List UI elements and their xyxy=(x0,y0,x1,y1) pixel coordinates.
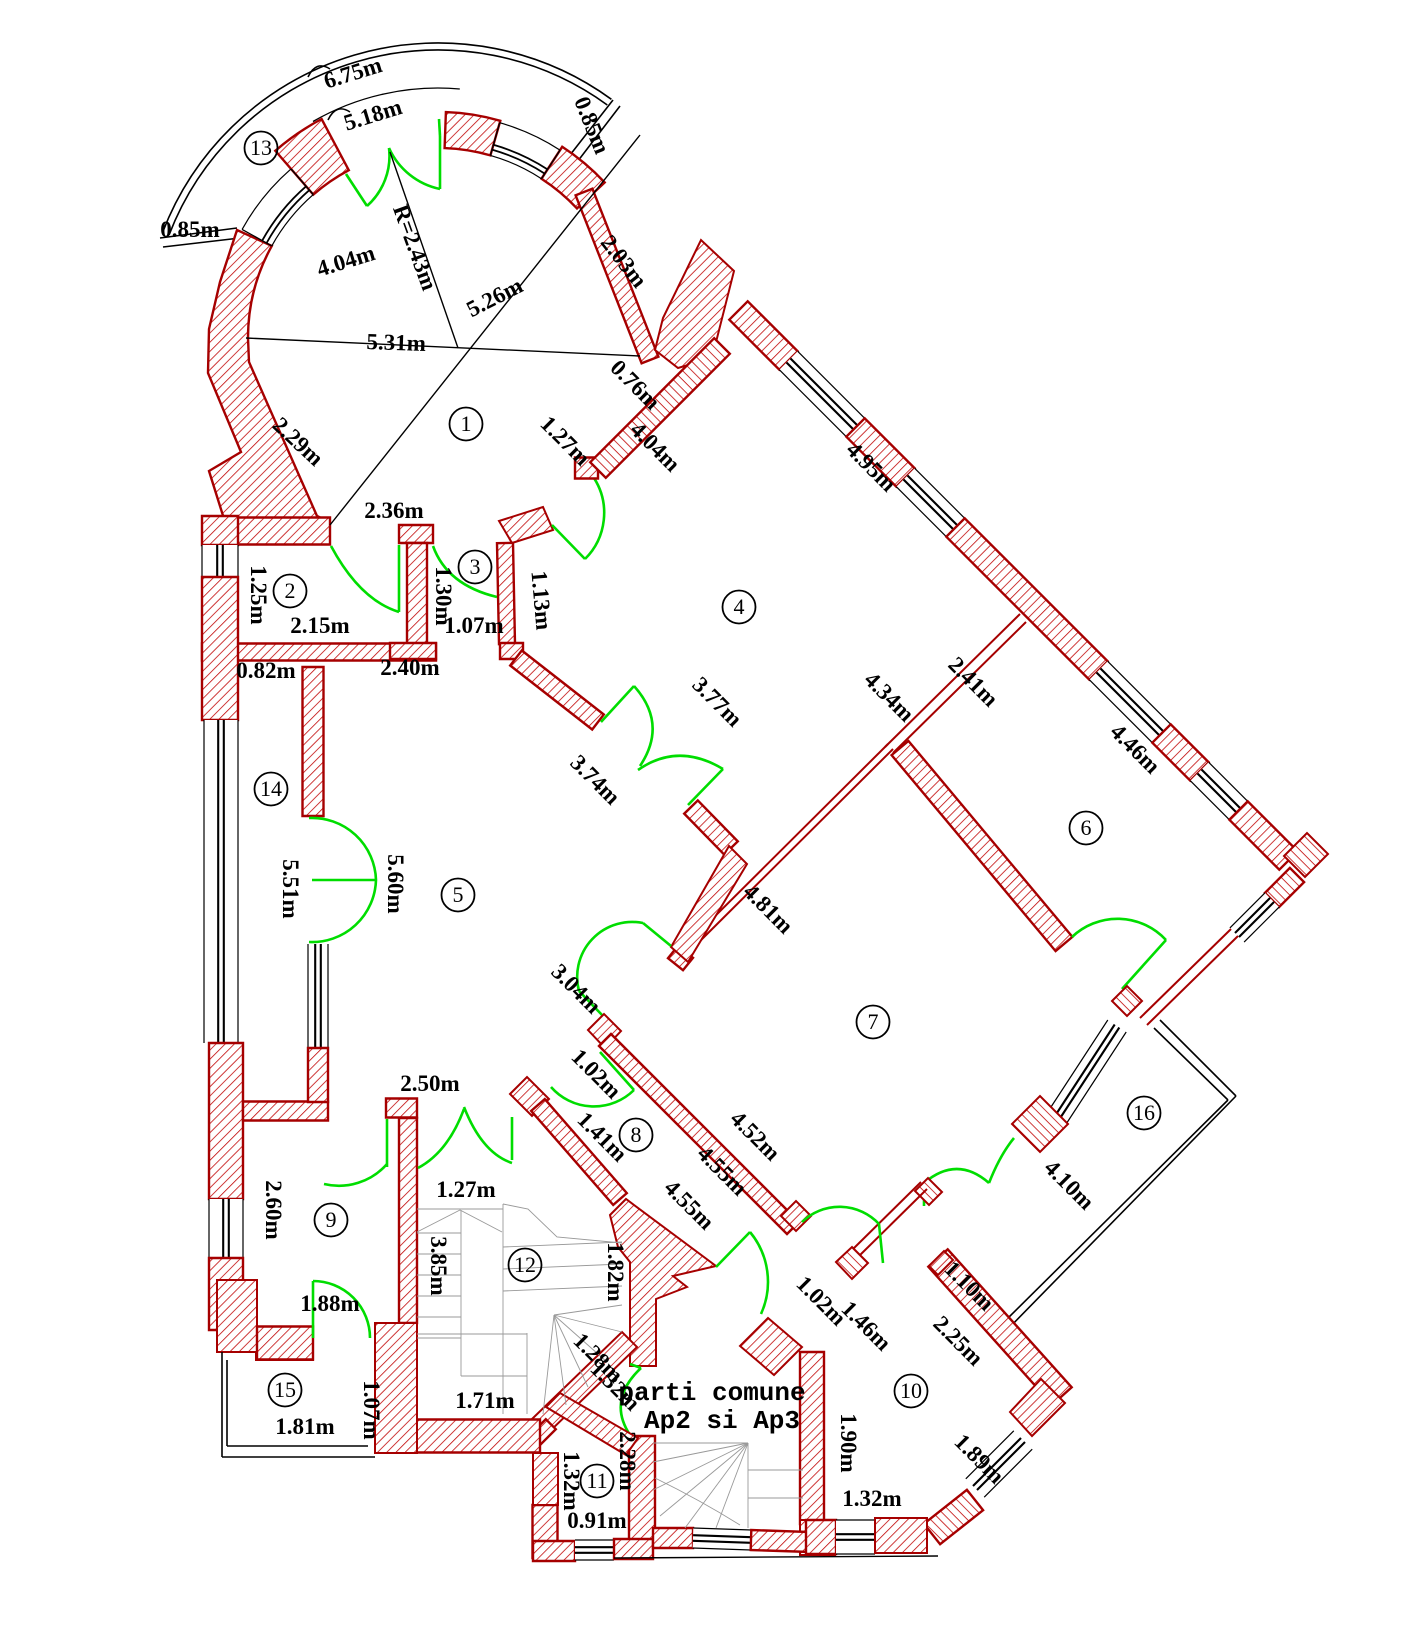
svg-text:1.90m: 1.90m xyxy=(836,1413,861,1472)
svg-text:0.91m: 0.91m xyxy=(567,1508,626,1533)
svg-text:2.50m: 2.50m xyxy=(400,1071,459,1096)
svg-text:0.82m: 0.82m xyxy=(236,658,295,683)
svg-text:Ap2 si Ap3: Ap2 si Ap3 xyxy=(644,1406,800,1436)
svg-text:2.60m: 2.60m xyxy=(261,1180,286,1239)
svg-text:1.07m: 1.07m xyxy=(359,1380,384,1439)
svg-text:5.51m: 5.51m xyxy=(278,859,303,918)
svg-text:5: 5 xyxy=(453,882,464,907)
svg-text:10: 10 xyxy=(900,1378,922,1403)
svg-text:2: 2 xyxy=(285,578,296,603)
svg-text:1.27m: 1.27m xyxy=(436,1177,495,1202)
svg-text:13: 13 xyxy=(250,135,272,160)
svg-text:4: 4 xyxy=(734,594,745,619)
svg-text:6: 6 xyxy=(1081,815,1092,840)
svg-text:1.32m: 1.32m xyxy=(842,1486,901,1511)
svg-text:1.07m: 1.07m xyxy=(444,613,503,638)
svg-text:5.60m: 5.60m xyxy=(383,854,408,913)
svg-text:12: 12 xyxy=(514,1252,536,1277)
svg-text:1.25m: 1.25m xyxy=(246,565,271,624)
svg-text:parti comune: parti comune xyxy=(618,1378,805,1408)
svg-text:2.40m: 2.40m xyxy=(380,655,439,680)
svg-text:2.28m: 2.28m xyxy=(615,1431,640,1490)
svg-text:14: 14 xyxy=(260,776,282,801)
svg-text:2.36m: 2.36m xyxy=(364,498,423,523)
svg-text:1.71m: 1.71m xyxy=(455,1388,514,1413)
svg-text:16: 16 xyxy=(1133,1100,1155,1125)
svg-text:1.88m: 1.88m xyxy=(300,1291,359,1316)
svg-text:8: 8 xyxy=(631,1122,642,1147)
svg-text:0.85m: 0.85m xyxy=(160,217,219,242)
svg-text:1.13m: 1.13m xyxy=(526,570,556,631)
svg-text:1.81m: 1.81m xyxy=(275,1414,334,1439)
svg-text:1: 1 xyxy=(461,411,472,436)
svg-text:5.31m: 5.31m xyxy=(366,329,426,356)
svg-text:3.85m: 3.85m xyxy=(426,1236,451,1295)
svg-text:7: 7 xyxy=(868,1009,879,1034)
svg-text:3: 3 xyxy=(470,554,481,579)
svg-text:9: 9 xyxy=(326,1207,337,1232)
svg-text:11: 11 xyxy=(586,1468,607,1493)
svg-text:2.15m: 2.15m xyxy=(290,613,349,638)
svg-text:1.82m: 1.82m xyxy=(603,1242,628,1301)
svg-text:15: 15 xyxy=(274,1377,296,1402)
